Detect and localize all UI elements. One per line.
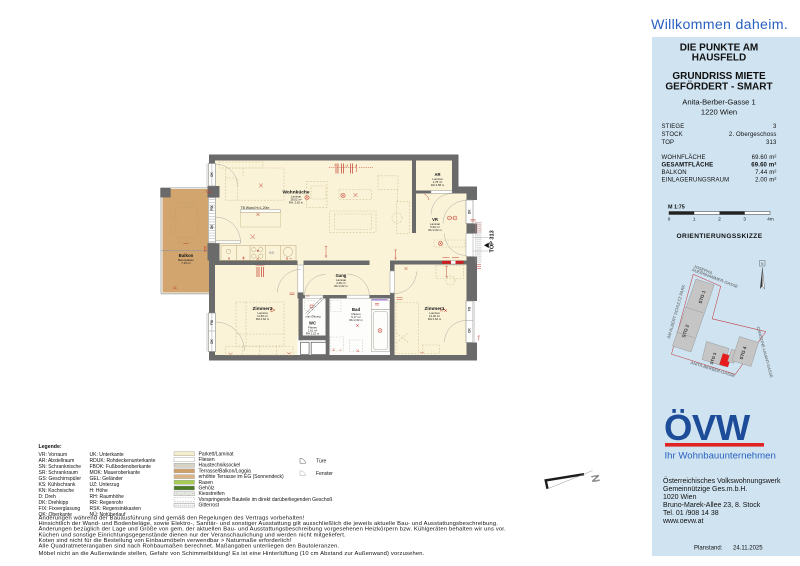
svg-text:RH 2,62 m: RH 2,62 m (428, 228, 442, 232)
svg-text:1: 1 (693, 217, 696, 222)
svg-text:RH 2,10 m: RH 2,10 m (306, 332, 320, 336)
svg-text:Willkommen daheim.: Willkommen daheim. (651, 17, 788, 33)
svg-text:2. Obergeschoss: 2. Obergeschoss (729, 132, 777, 138)
svg-text:DK: DK (210, 339, 214, 344)
svg-text:RH 2,58 m: RH 2,58 m (431, 183, 445, 187)
svg-text:Gitterrost: Gitterrost (199, 503, 220, 509)
svg-text:DK: DK (468, 209, 472, 214)
svg-text:RH 2,62 m: RH 2,62 m (349, 318, 363, 322)
svg-text:69.60 m²: 69.60 m² (752, 155, 777, 161)
svg-text:DK: DK (210, 172, 214, 177)
svg-text:Legende:: Legende: (39, 444, 62, 450)
svg-text:0: 0 (668, 217, 671, 222)
svg-text:DK: DK (468, 328, 472, 333)
svg-text:GESAMTFLÄCHE: GESAMTFLÄCHE (662, 162, 714, 169)
svg-text:FD: FD (468, 306, 472, 311)
svg-text:Österreichisches Volkswohnungs: Österreichisches Volkswohnungswerk (663, 477, 781, 485)
svg-text:69.60 m²: 69.60 m² (751, 162, 776, 169)
svg-text:GEFÖRDERT - SMART: GEFÖRDERT - SMART (665, 80, 772, 93)
svg-text:ORIENTIERUNGSSKIZZE: ORIENTIERUNGSSKIZZE (677, 233, 763, 240)
svg-text:GRUNDRISS MIETE: GRUNDRISS MIETE (672, 71, 766, 82)
svg-text:max Öffnung: max Öffnung (306, 315, 321, 319)
svg-text:7.44 m²: 7.44 m² (755, 170, 776, 176)
svg-text:www.oevw.at: www.oevw.at (662, 518, 704, 525)
svg-text:Alle Quadratmeterangaben sind: Alle Quadratmeterangaben sind nach Rohba… (39, 544, 340, 550)
svg-text:Türe: Türe (316, 459, 327, 465)
svg-text:ÖVW: ÖVW (664, 407, 751, 448)
svg-text:Möbel nicht an die Außenwände: Möbel nicht an die Außenwände stellen, G… (39, 551, 425, 557)
svg-text:Anita-Berber-Gasse 1: Anita-Berber-Gasse 1 (682, 98, 755, 107)
svg-text:RH: 2,62 m: RH: 2,62 m (289, 201, 304, 205)
svg-text:HAUSFELD: HAUSFELD (692, 53, 746, 64)
svg-text:WOHNFLÄCHE: WOHNFLÄCHE (662, 154, 706, 161)
svg-text:STIEGE: STIEGE (662, 124, 685, 130)
svg-text:RH 2,62 m: RH 2,62 m (334, 284, 348, 288)
svg-text:3: 3 (743, 217, 746, 222)
svg-text:4m: 4m (767, 217, 774, 222)
svg-text:M 1:75: M 1:75 (668, 205, 685, 211)
svg-text:1020 Wien: 1020 Wien (663, 494, 697, 501)
svg-text:TB Wand H=1,20m: TB Wand H=1,20m (241, 206, 270, 210)
svg-text:TOP 313: TOP 313 (490, 230, 496, 252)
svg-text:24.11.2025: 24.11.2025 (733, 546, 763, 552)
svg-text:GS: GS (269, 251, 275, 255)
svg-text:Ihr Wohnbauunternehmen: Ihr Wohnbauunternehmen (665, 451, 776, 462)
svg-text:RH 2,62 m: RH 2,62 m (428, 317, 442, 321)
svg-text:7,44 m²: 7,44 m² (181, 261, 191, 265)
svg-text:TOP: TOP (662, 140, 675, 146)
svg-text:1220 Wien: 1220 Wien (701, 108, 737, 117)
svg-text:313: 313 (766, 140, 777, 146)
svg-text:Tel. 01 /908 14 38: Tel. 01 /908 14 38 (663, 510, 719, 517)
svg-text:2.00 m²: 2.00 m² (755, 178, 776, 184)
svg-text:FIX: FIX (210, 319, 214, 325)
svg-text:DK: DK (210, 224, 214, 229)
svg-text:2: 2 (718, 217, 721, 222)
svg-text:Bruno-Marek-Allee 23, 8. Stock: Bruno-Marek-Allee 23, 8. Stock (663, 502, 761, 509)
svg-text:STOCK: STOCK (662, 132, 683, 138)
svg-text:BALKON: BALKON (662, 170, 687, 176)
svg-text:RH 2,62 m: RH 2,62 m (256, 317, 270, 321)
svg-text:Planstand:: Planstand: (694, 546, 723, 552)
svg-text:Gemeinnützige Ges.m.b.H.: Gemeinnützige Ges.m.b.H. (663, 486, 747, 493)
svg-text:Fenster: Fenster (316, 471, 333, 477)
svg-text:N: N (589, 474, 601, 483)
svg-text:3: 3 (773, 124, 777, 130)
svg-text:EINLAGERUNGSRAUM: EINLAGERUNGSRAUM (662, 178, 730, 184)
svg-text:N: N (761, 262, 764, 266)
svg-text:FIX: FIX (210, 205, 214, 211)
